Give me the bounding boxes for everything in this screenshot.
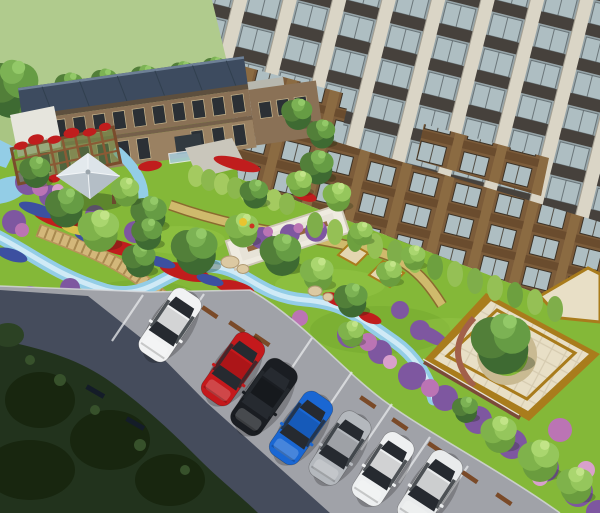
landscape-rendering: Aerial 3D architectural rendering of a r… [0,0,600,513]
gazebo-finial [86,170,91,175]
rendering-canvas: Aerial 3D architectural rendering of a r… [0,0,600,513]
